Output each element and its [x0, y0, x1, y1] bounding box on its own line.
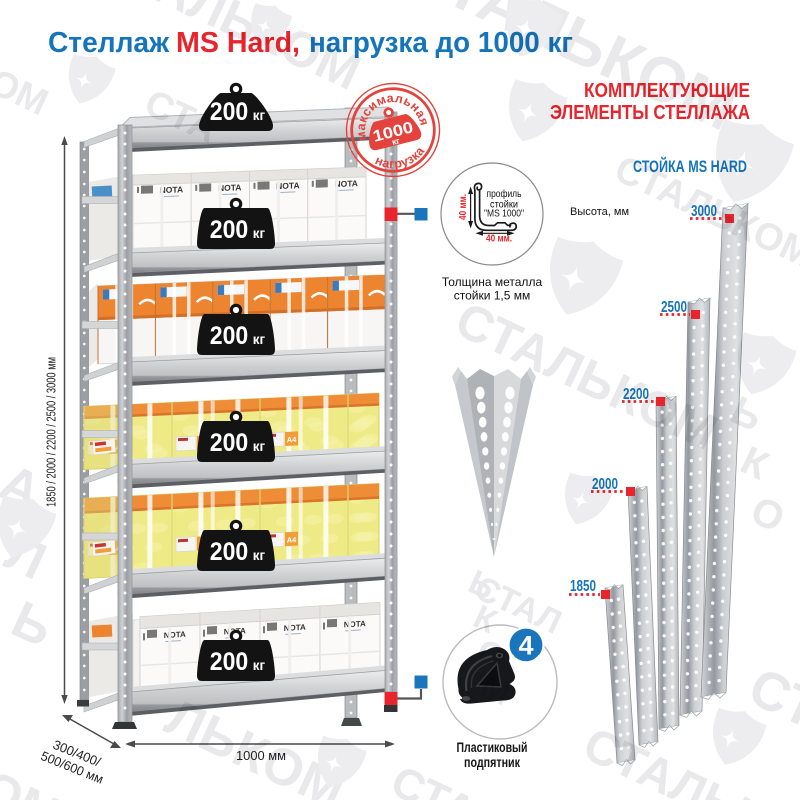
svg-text:200: 200 [210, 429, 249, 457]
svg-text:Толщина металла: Толщина металла [442, 275, 543, 289]
svg-text:NOTA: NOTA [344, 619, 366, 629]
svg-text:40 мм.: 40 мм. [457, 194, 469, 220]
svg-text:подпятник: подпятник [464, 755, 520, 770]
svg-text:200: 200 [210, 538, 249, 566]
svg-text:Стеллаж: Стеллаж [48, 27, 170, 59]
svg-text:кг: кг [253, 332, 266, 347]
svg-text:кг: кг [253, 226, 266, 241]
svg-text:A4: A4 [287, 535, 297, 545]
svg-text:Пластиковый: Пластиковый [457, 740, 528, 755]
svg-text:A4: A4 [287, 435, 297, 444]
svg-text:40 мм.: 40 мм. [486, 233, 512, 245]
svg-text:кг: кг [253, 658, 266, 673]
svg-text:200: 200 [210, 216, 249, 244]
svg-text:кг: кг [253, 108, 266, 123]
svg-text:кг: кг [253, 439, 266, 454]
svg-text:4: 4 [518, 631, 533, 661]
svg-text:200: 200 [210, 322, 249, 350]
svg-text:NOTA: NOTA [284, 623, 306, 633]
svg-text:1850: 1850 [570, 578, 596, 595]
svg-text:кг: кг [253, 548, 266, 563]
svg-text:1850 / 2000 / 2200 / 2500 / 30: 1850 / 2000 / 2200 / 2500 / 3000 мм [44, 357, 59, 507]
svg-text:Высота, мм: Высота, мм [570, 206, 629, 218]
svg-text:200: 200 [210, 648, 249, 676]
svg-text:NOTA: NOTA [164, 630, 186, 640]
svg-text:"MS 1000": "MS 1000" [484, 208, 524, 220]
